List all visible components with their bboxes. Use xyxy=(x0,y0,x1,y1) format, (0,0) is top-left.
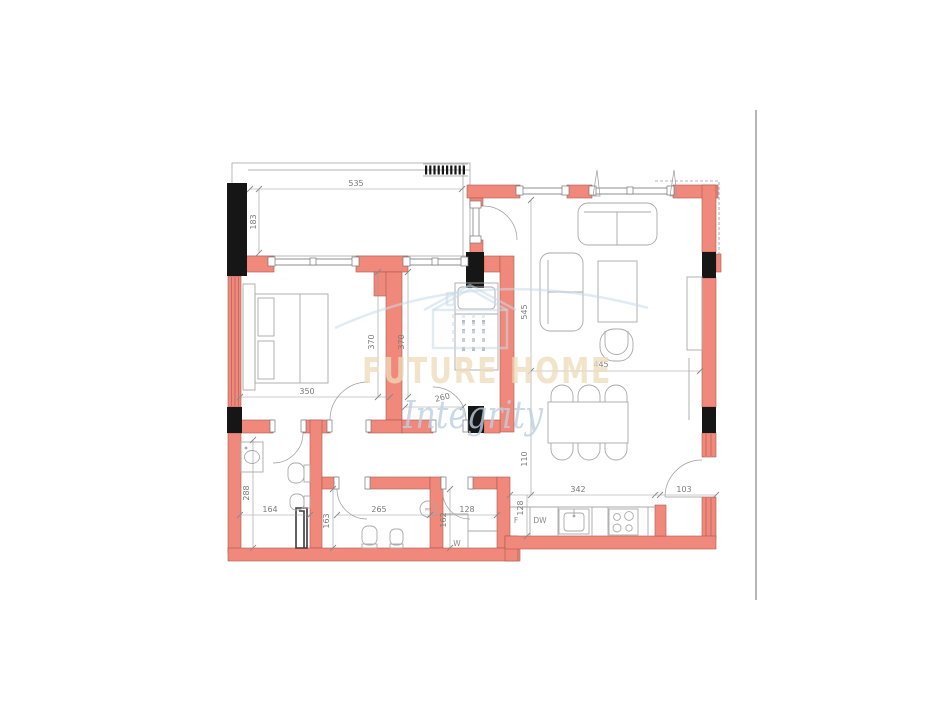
dim-kitchen-depth: 128 xyxy=(516,500,525,515)
dim-bath-width: 265 xyxy=(371,505,386,514)
balcony xyxy=(232,163,470,256)
pillow xyxy=(258,298,274,336)
toilet-tank xyxy=(304,465,310,482)
bidet xyxy=(390,529,403,545)
fridge-label: F xyxy=(514,516,518,525)
furniture-dining xyxy=(548,385,628,460)
dim-bedroom1-width: 350 xyxy=(299,387,314,396)
floor-plan-page: F DW WM W xyxy=(0,0,950,713)
page-divider-line xyxy=(755,110,757,600)
dim-living-height: 545 xyxy=(520,304,529,319)
furniture-bedroom1 xyxy=(243,284,328,390)
dim-bath-height: 163 xyxy=(322,513,331,528)
dishwasher-label: DW xyxy=(533,516,547,525)
floor-plan-svg: F DW WM W xyxy=(0,0,950,713)
dim-balcony-width: 535 xyxy=(348,179,363,188)
washing-machine-label: WM xyxy=(425,508,431,512)
wc-fixtures xyxy=(241,442,310,510)
toilet xyxy=(288,463,304,483)
dim-kitchen-width: 342 xyxy=(570,485,585,494)
double-bed xyxy=(255,294,328,383)
dim-laundry-width: 128 xyxy=(459,505,474,514)
dim-balcony-depth: 183 xyxy=(249,214,258,229)
headboard xyxy=(243,284,255,390)
cooktop xyxy=(609,509,638,535)
watermark-brand-text: FUTURE HOME xyxy=(362,351,612,392)
dim-bedroom1-height: 370 xyxy=(367,334,376,349)
balcony-door-arc xyxy=(483,206,517,240)
windows xyxy=(268,170,719,489)
dim-wc-height: 288 xyxy=(242,485,251,500)
dim-dining-strip: 110 xyxy=(520,451,529,466)
dining-chair xyxy=(551,443,573,460)
bath-door-arc xyxy=(337,489,367,519)
tv-board xyxy=(687,277,702,350)
pillow xyxy=(258,341,274,379)
service-door-frame xyxy=(296,508,307,548)
bidet-tank xyxy=(304,496,310,508)
dim-bedroom2-height: 370 xyxy=(397,334,406,349)
dim-entry-width: 103 xyxy=(676,485,691,494)
dining-table xyxy=(548,402,628,443)
toilet xyxy=(362,526,377,545)
dining-chair xyxy=(605,443,627,460)
dim-wc-width: 164 xyxy=(262,505,277,514)
dim-laundry-height: 162 xyxy=(439,512,448,527)
coffee-table xyxy=(598,261,637,322)
dining-chair xyxy=(578,443,600,460)
washer-label: W xyxy=(453,539,461,548)
watermark-script-text: Integrity xyxy=(402,393,543,437)
watermark-house-windows xyxy=(452,314,485,342)
sofa xyxy=(578,203,657,245)
wc-door-arc xyxy=(273,433,303,463)
kitchen: F DW xyxy=(510,507,655,536)
